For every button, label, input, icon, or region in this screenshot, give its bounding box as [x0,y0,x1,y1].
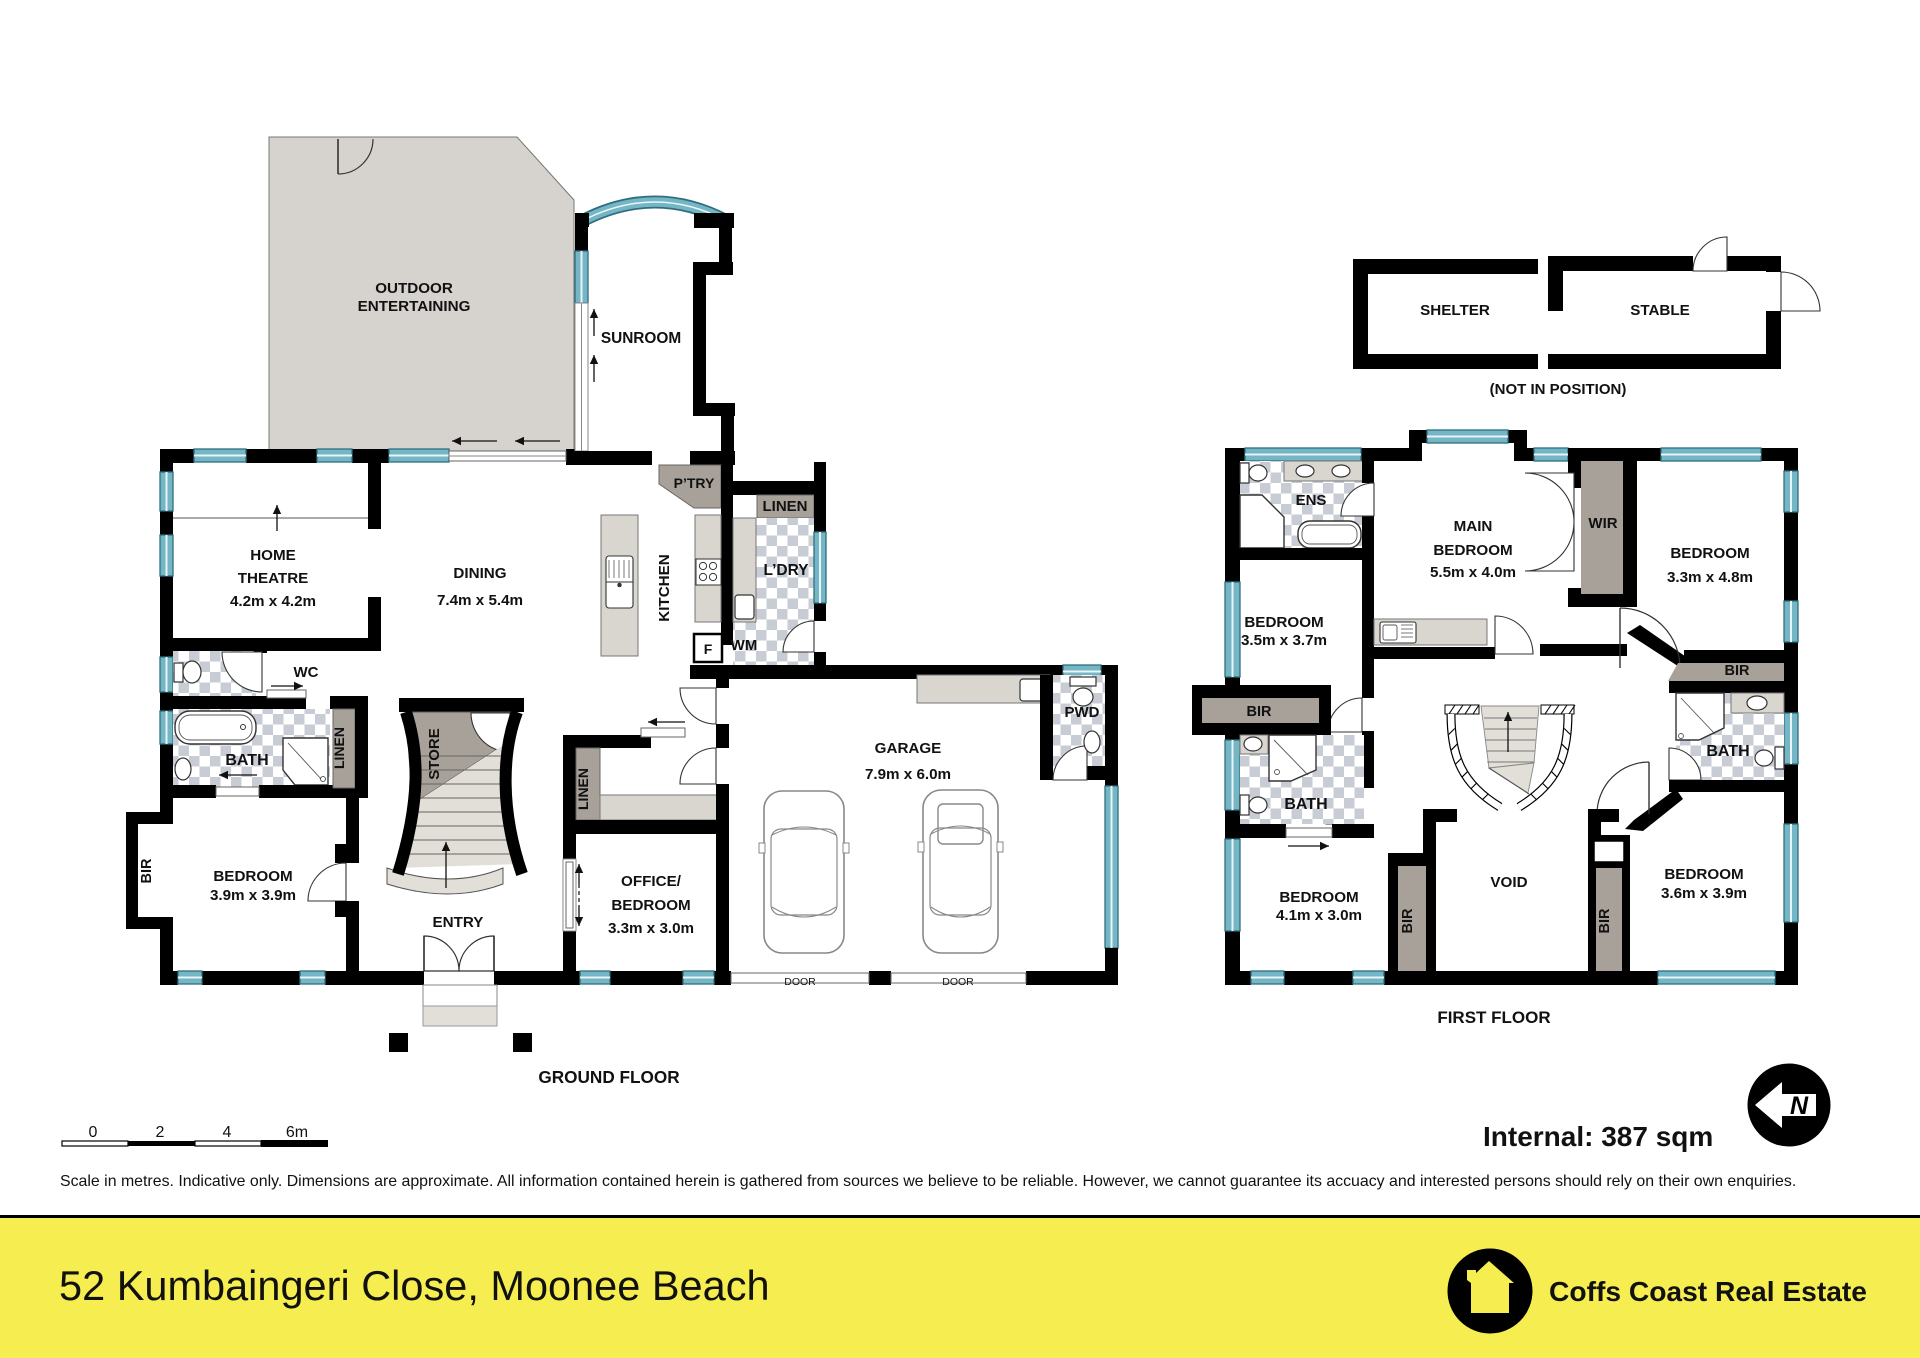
svg-text:DOOR: DOOR [784,976,816,988]
svg-text:BIR: BIR [1725,663,1751,679]
svg-text:SUNROOM: SUNROOM [601,330,681,347]
svg-text:BIR: BIR [139,858,155,884]
svg-text:DOOR: DOOR [942,976,974,988]
svg-text:BEDROOM: BEDROOM [1670,545,1749,562]
svg-text:3.5m x 3.7m: 3.5m x 3.7m [1241,632,1327,649]
svg-text:BEDROOM: BEDROOM [1279,889,1358,906]
svg-text:3.9m x 3.9m: 3.9m x 3.9m [210,887,296,904]
svg-text:3.3m x 3.0m: 3.3m x 3.0m [608,920,694,937]
svg-text:GARAGE: GARAGE [875,740,942,757]
svg-text:2: 2 [156,1124,165,1141]
svg-text:ENS: ENS [1296,492,1327,509]
svg-text:BEDROOM: BEDROOM [1244,614,1323,631]
svg-text:DINING: DINING [453,565,506,582]
svg-text:LINEN: LINEN [331,727,347,769]
svg-text:3.6m x 3.9m: 3.6m x 3.9m [1661,885,1747,902]
svg-text:7.4m x 5.4m: 7.4m x 5.4m [437,592,523,609]
svg-text:L’DRY: L’DRY [763,562,809,579]
svg-text:OUTDOOR: OUTDOOR [375,280,453,297]
svg-text:BIR: BIR [1400,908,1416,934]
svg-text:VOID: VOID [1490,874,1527,891]
svg-text:WIR: WIR [1588,515,1617,532]
svg-text:LINEN: LINEN [763,498,808,515]
svg-text:P’TRY: P’TRY [674,475,715,491]
svg-text:3.3m x 4.8m: 3.3m x 4.8m [1667,569,1753,586]
svg-text:HOME: HOME [250,547,296,564]
svg-text:(NOT IN POSITION): (NOT IN POSITION) [1490,381,1627,398]
svg-text:52 Kumbaingeri Close, Moonee B: 52 Kumbaingeri Close, Moonee Beach [59,1262,770,1309]
svg-text:ENTRY: ENTRY [433,914,484,931]
svg-text:BEDROOM: BEDROOM [611,897,690,914]
svg-text:STABLE: STABLE [1630,302,1690,319]
svg-text:BATH: BATH [1706,743,1749,760]
svg-text:F: F [704,641,713,657]
svg-text:0: 0 [89,1124,98,1141]
svg-text:N: N [1790,1092,1809,1120]
svg-text:SHELTER: SHELTER [1420,302,1490,319]
svg-text:GROUND FLOOR: GROUND FLOOR [538,1067,680,1087]
svg-text:BEDROOM: BEDROOM [1433,542,1512,559]
svg-text:Scale in metres. Indicative on: Scale in metres. Indicative only. Dimens… [60,1173,1796,1190]
svg-text:BIR: BIR [1247,704,1273,720]
svg-text:FIRST FLOOR: FIRST FLOOR [1437,1008,1550,1027]
svg-text:BATH: BATH [1284,796,1327,813]
svg-text:STORE: STORE [426,728,443,779]
svg-text:WM: WM [731,637,758,654]
svg-text:BIR: BIR [1597,908,1613,934]
svg-text:OFFICE/: OFFICE/ [621,873,682,890]
svg-text:7.9m x 6.0m: 7.9m x 6.0m [865,766,951,783]
svg-text:KITCHEN: KITCHEN [656,554,673,622]
svg-text:LINEN: LINEN [575,768,591,810]
svg-text:4: 4 [223,1124,232,1141]
svg-text:BEDROOM: BEDROOM [213,868,292,885]
svg-text:4.2m x 4.2m: 4.2m x 4.2m [230,593,316,610]
svg-text:ENTERTAINING: ENTERTAINING [358,298,471,315]
svg-text:5.5m x 4.0m: 5.5m x 4.0m [1430,564,1516,581]
svg-text:4.1m x 3.0m: 4.1m x 3.0m [1276,907,1362,924]
svg-text:WC: WC [294,664,319,681]
svg-text:BATH: BATH [225,752,268,769]
svg-text:6m: 6m [286,1124,308,1141]
svg-text:MAIN: MAIN [1454,518,1493,535]
svg-text:Internal: 387 sqm: Internal: 387 sqm [1483,1121,1713,1152]
svg-text:Coffs Coast Real Estate: Coffs Coast Real Estate [1549,1275,1867,1307]
svg-text:BEDROOM: BEDROOM [1664,866,1743,883]
svg-text:PWD: PWD [1065,704,1100,721]
svg-text:THEATRE: THEATRE [238,570,309,587]
